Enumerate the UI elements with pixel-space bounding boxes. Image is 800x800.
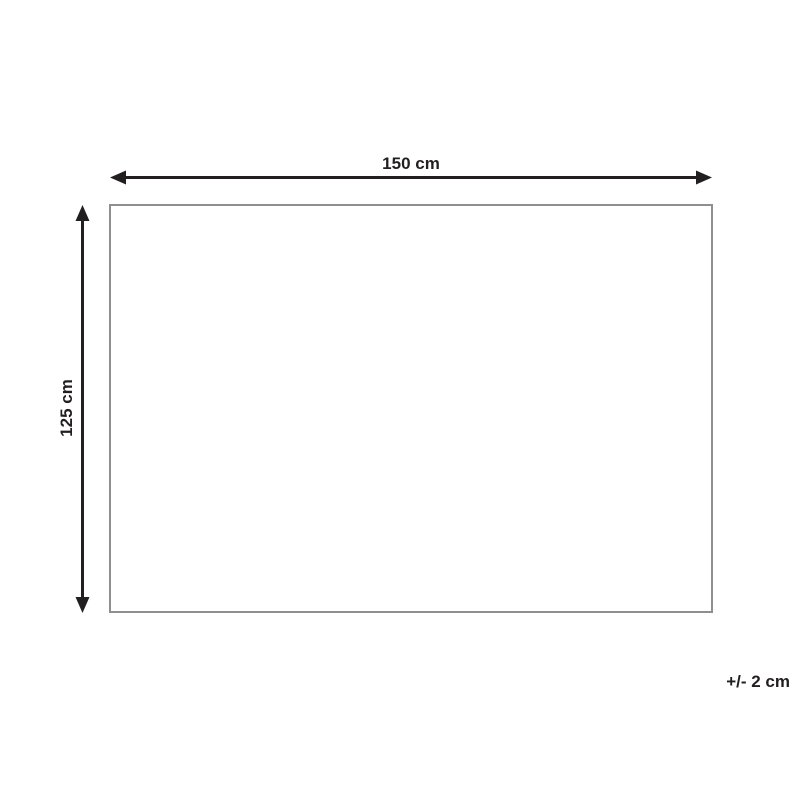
height-arrowhead-bottom-icon: [76, 597, 90, 613]
tolerance-label: +/- 2 cm: [726, 672, 790, 692]
dimension-diagram: 150 cm 125 cm +/- 2 cm: [0, 0, 800, 800]
product-outline-rect: [110, 205, 712, 612]
height-arrowhead-top-icon: [76, 205, 90, 221]
width-dimension-label: 150 cm: [110, 154, 712, 174]
diagram-graphics: [0, 0, 800, 800]
height-dimension-label: 125 cm: [57, 366, 77, 450]
